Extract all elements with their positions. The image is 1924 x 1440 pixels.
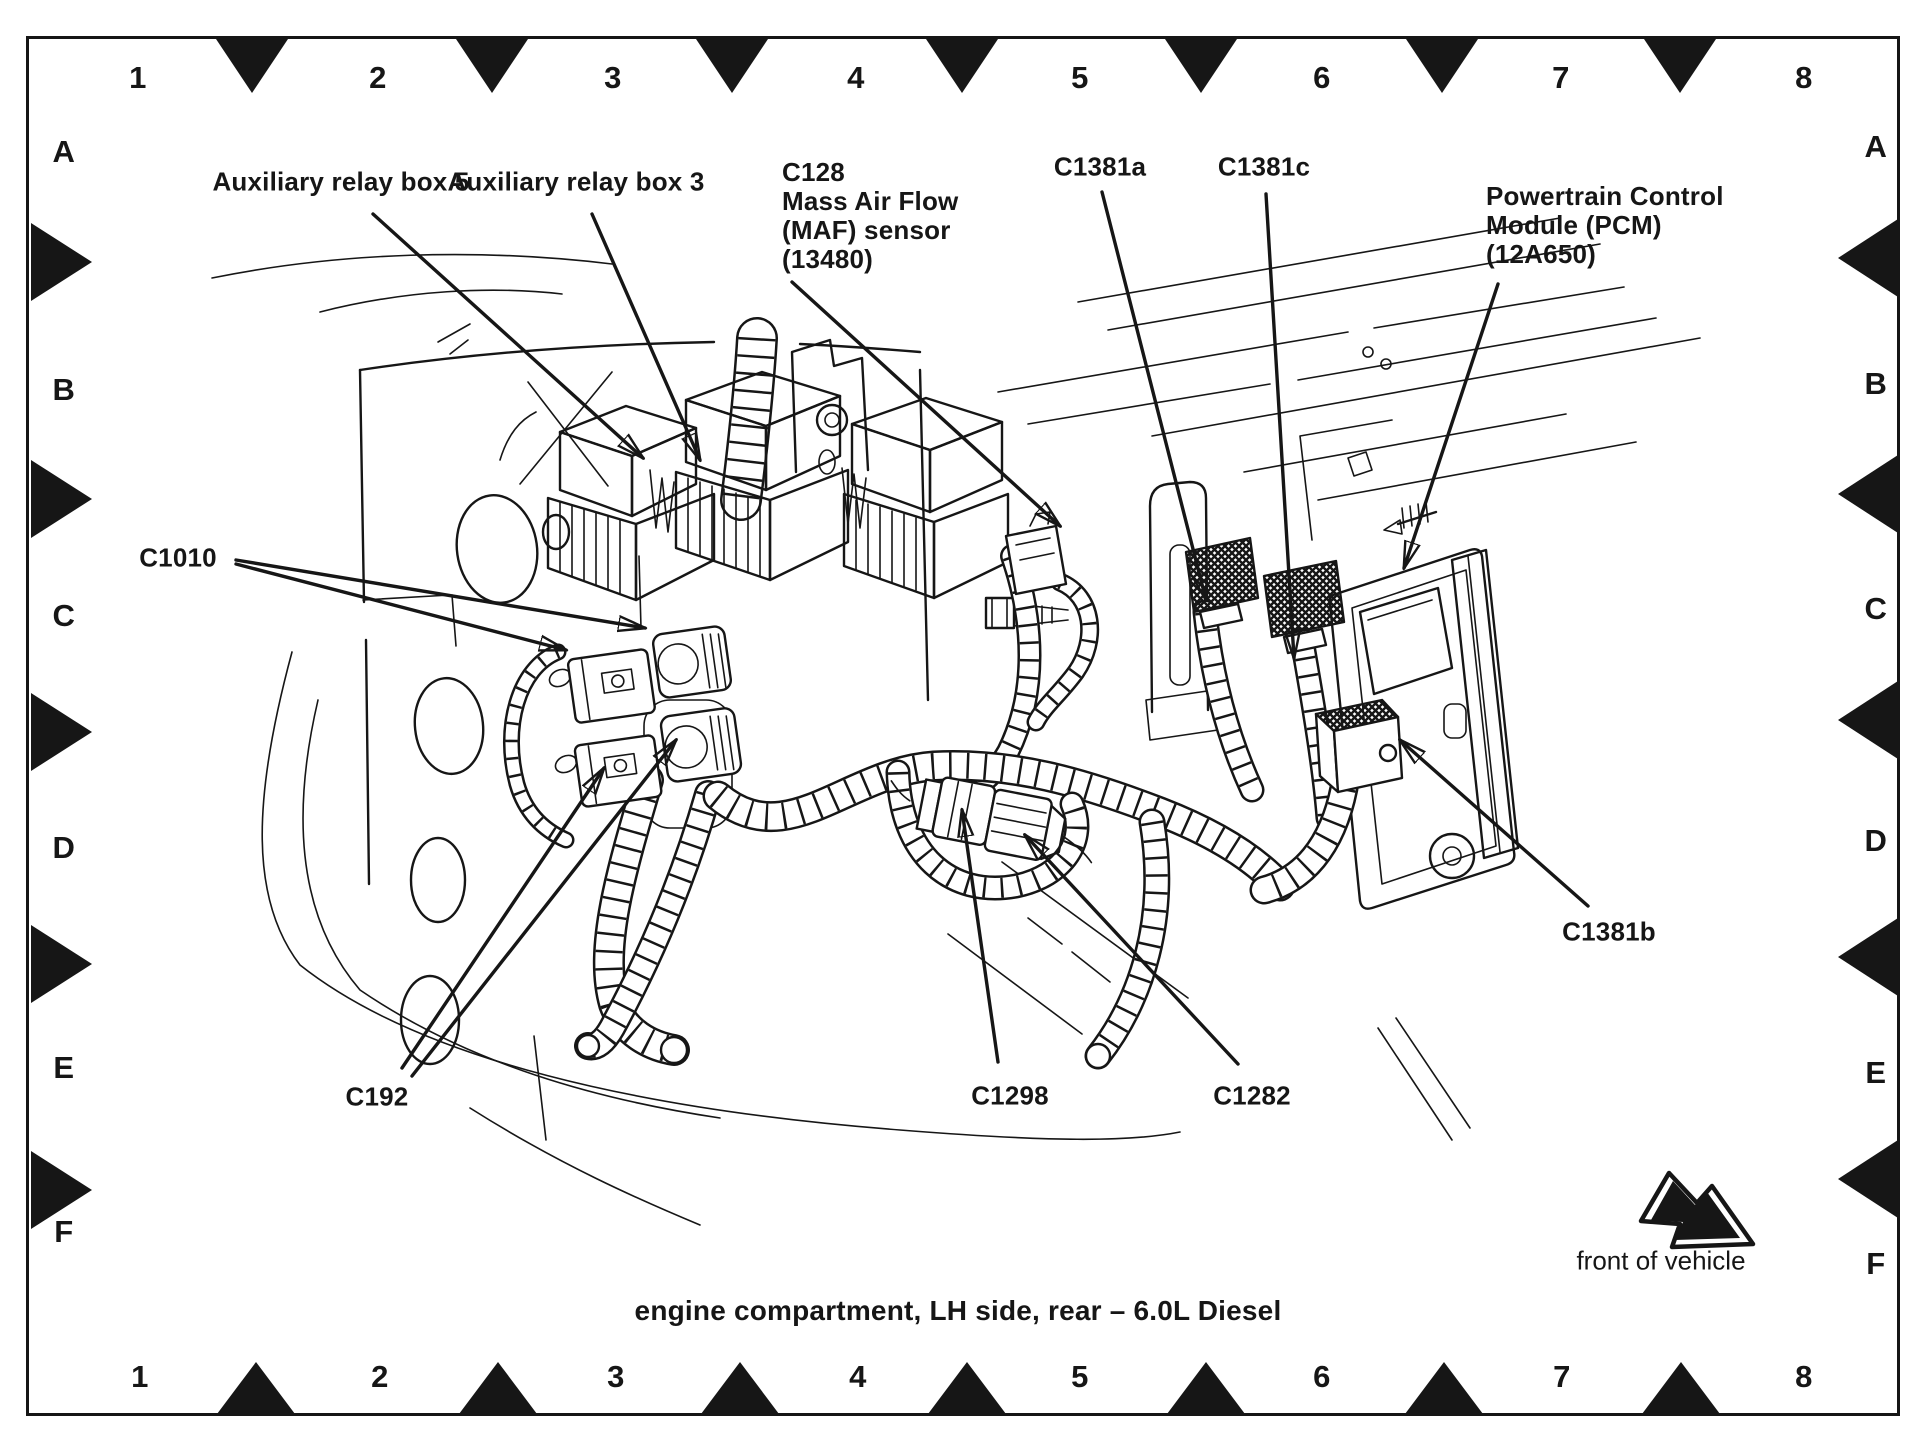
grid-ref-left-C: C [53,598,76,634]
registration-triangle [1167,1362,1245,1414]
grid-ref-top-6: 6 [1313,60,1331,96]
front-of-vehicle-label: front of vehicle [1576,1246,1745,1277]
grid-ref-left-A: A [53,134,76,170]
registration-triangle [701,1362,779,1414]
grid-ref-bottom-2: 2 [371,1359,389,1395]
harness-tube [511,652,566,840]
leader-line [402,768,604,1068]
grid-ref-bottom-7: 7 [1553,1359,1571,1395]
registration-triangle [1838,681,1898,759]
grid-ref-right-D: D [1865,823,1888,859]
grid-ref-top-8: 8 [1795,60,1813,96]
registration-triangle [456,39,528,93]
grid-ref-right-C: C [1865,591,1888,627]
registration-triangle [1165,39,1237,93]
leader-line [373,214,643,458]
callout-pcm: Powertrain Control Module (PCM) (12A650) [1486,182,1724,269]
mounting-bracket [792,340,868,474]
registration-triangle [31,460,92,538]
leader-line [1400,740,1588,906]
callout-line: Mass Air Flow [782,187,958,216]
callout-aux-relay-box-3: Auxiliary relay box 3 [447,167,704,198]
grid-ref-bottom-6: 6 [1313,1359,1331,1395]
registration-triangle [31,693,92,771]
registration-triangle [459,1362,537,1414]
callout-line: Powertrain Control [1486,182,1724,211]
grid-ref-top-2: 2 [369,60,387,96]
body-structure-lines [212,218,1700,1225]
leader-line [1404,284,1498,568]
figure-caption: engine compartment, LH side, rear – 6.0L… [635,1295,1282,1327]
callout-c1282: C1282 [1213,1081,1291,1112]
registration-triangle [1642,1362,1720,1414]
registration-triangle [31,925,92,1003]
registration-triangle [31,223,92,301]
grid-ref-top-7: 7 [1552,60,1570,96]
registration-triangle [926,39,998,93]
diagram-page: 1234567812345678ABCDEFABCDEF Auxiliary r… [0,0,1924,1440]
grid-ref-right-B: B [1865,366,1888,402]
connector-c1381c [1264,561,1344,653]
callout-line: (12A650) [1486,240,1724,269]
grid-ref-left-B: B [53,372,76,408]
callout-c1381a: C1381a [1054,152,1146,183]
grid-ref-top-4: 4 [847,60,865,96]
grid-ref-bottom-4: 4 [849,1359,867,1395]
grid-ref-top-1: 1 [129,60,147,96]
registration-triangle [696,39,768,93]
callout-aux-relay-box-5: Auxiliary relay box 5 [212,167,469,198]
callout-leader-lines [236,192,1588,1076]
callout-c1381c: C1381c [1218,152,1310,183]
callout-c1298: C1298 [971,1081,1049,1112]
connector-c1381b [1316,700,1402,792]
registration-triangle [216,39,288,93]
registration-triangle [1838,219,1898,297]
grid-ref-bottom-1: 1 [131,1359,149,1395]
callout-c1010: C1010 [139,543,217,574]
registration-triangle [1838,918,1898,996]
registration-triangle [1838,455,1898,533]
callout-c128-maf-sensor: C128 Mass Air Flow (MAF) sensor (13480) [782,158,958,274]
callout-line: Module (PCM) [1486,211,1724,240]
grid-ref-left-E: E [53,1050,74,1086]
registration-triangle [1405,1362,1483,1414]
registration-triangle [1406,39,1478,93]
registration-triangle [217,1362,295,1414]
grid-ref-right-E: E [1865,1055,1886,1091]
grid-ref-top-3: 3 [604,60,622,96]
registration-triangle [928,1362,1006,1414]
registration-triangle [1838,1140,1898,1218]
grid-ref-bottom-8: 8 [1795,1359,1813,1395]
grid-ref-bottom-5: 5 [1071,1359,1089,1395]
callout-line: (MAF) sensor [782,216,958,245]
grid-ref-bottom-3: 3 [607,1359,625,1395]
grid-ref-top-5: 5 [1071,60,1089,96]
connector-c192 [652,625,742,782]
grid-ref-right-F: F [1866,1246,1885,1282]
registration-triangle [1644,39,1716,93]
callout-line: C128 [782,158,958,187]
grid-ref-left-F: F [54,1214,73,1250]
callout-c192: C192 [346,1082,409,1113]
grid-ref-left-D: D [53,830,76,866]
callout-c1381b: C1381b [1562,917,1656,948]
connector-c1010 [567,649,662,807]
grid-ref-right-A: A [1865,129,1888,165]
leader-line [1102,192,1206,600]
leader-line [592,214,700,460]
front-of-vehicle-arrow-icon [1641,1173,1753,1247]
callout-line: (13480) [782,245,958,274]
